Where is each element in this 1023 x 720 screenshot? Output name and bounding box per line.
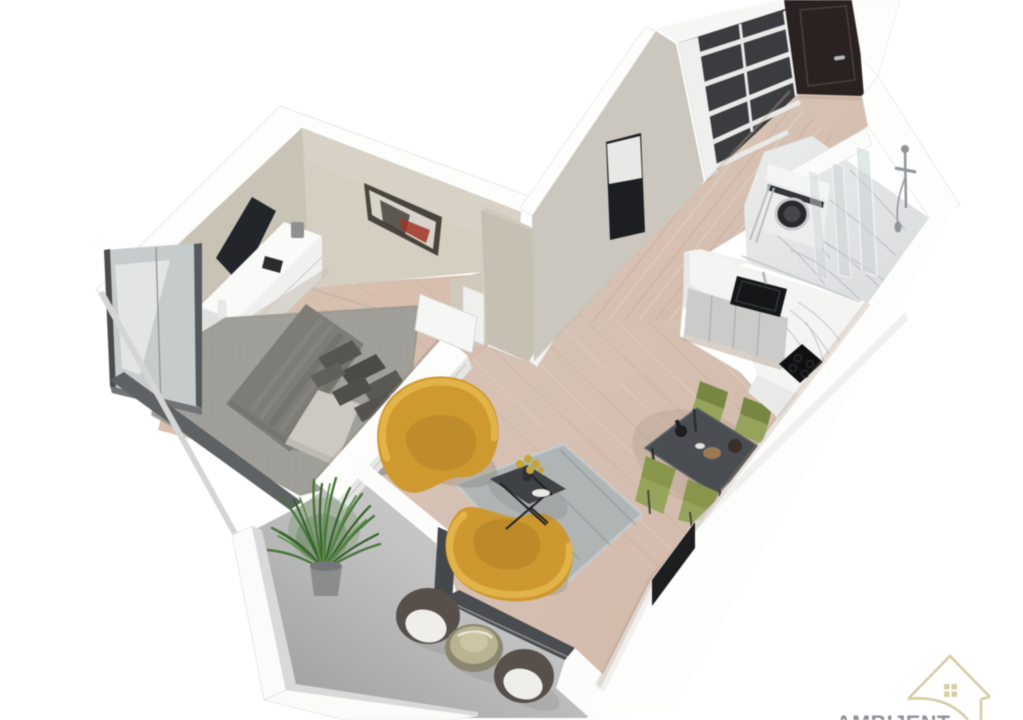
- svg-text:AMBIJENT: AMBIJENT: [836, 711, 951, 720]
